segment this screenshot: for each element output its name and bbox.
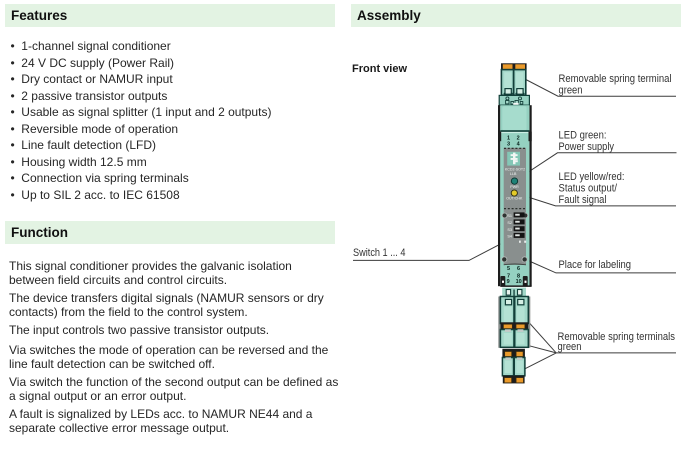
svg-text:Place for labeling: Place for labeling bbox=[559, 259, 632, 271]
svg-text:PWR: PWR bbox=[510, 185, 519, 189]
svg-text:OUT/CHK: OUT/CHK bbox=[506, 197, 523, 201]
svg-text:KCD2-SOT2: KCD2-SOT2 bbox=[505, 168, 525, 172]
svg-text:3: 3 bbox=[507, 141, 510, 147]
svg-text:5: 5 bbox=[507, 266, 510, 272]
svg-text:Fault signal: Fault signal bbox=[559, 194, 607, 206]
svg-text:S4: S4 bbox=[507, 235, 512, 239]
svg-text:10: 10 bbox=[516, 279, 522, 285]
svg-text:6: 6 bbox=[517, 266, 520, 272]
svg-text:Switch 1 ... 4: Switch 1 ... 4 bbox=[353, 247, 406, 259]
svg-text:Power supply: Power supply bbox=[559, 141, 615, 153]
svg-text:LLB: LLB bbox=[510, 172, 517, 176]
svg-text:LED green:: LED green: bbox=[559, 129, 607, 141]
svg-text:S3: S3 bbox=[507, 228, 512, 232]
svg-text:green: green bbox=[559, 85, 583, 97]
svg-text:S2: S2 bbox=[507, 221, 512, 225]
svg-text:Removable spring terminal: Removable spring terminal bbox=[559, 73, 672, 85]
svg-text:9: 9 bbox=[507, 279, 510, 285]
svg-text:S1: S1 bbox=[507, 214, 512, 218]
svg-text:LED yellow/red:: LED yellow/red: bbox=[559, 171, 625, 183]
svg-text:Status output/: Status output/ bbox=[559, 182, 618, 194]
svg-text:green: green bbox=[558, 341, 582, 353]
